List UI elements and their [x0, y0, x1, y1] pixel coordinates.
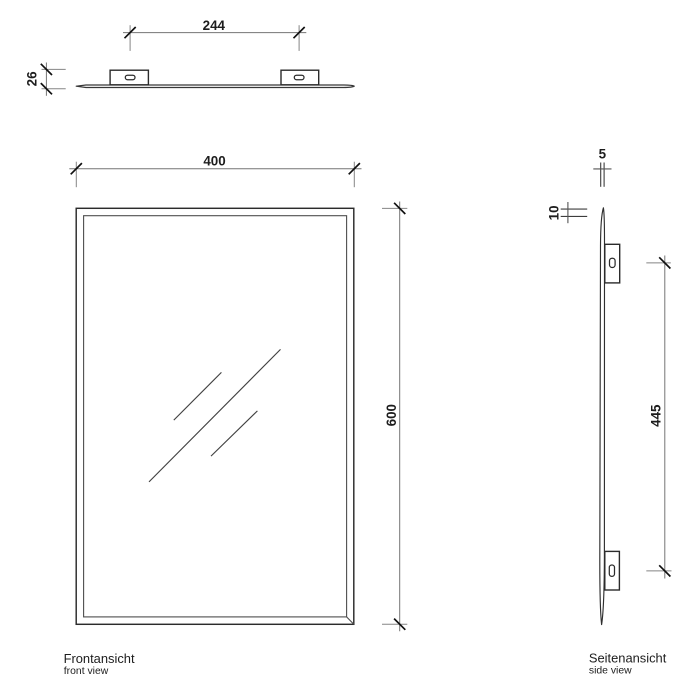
- svg-text:front view: front view: [64, 666, 109, 677]
- svg-text:445: 445: [649, 404, 664, 427]
- svg-text:26: 26: [24, 71, 39, 86]
- svg-text:600: 600: [384, 404, 399, 426]
- svg-text:400: 400: [203, 153, 225, 168]
- svg-text:Seitenansicht: Seitenansicht: [589, 651, 667, 666]
- svg-text:244: 244: [203, 18, 226, 33]
- svg-text:5: 5: [599, 147, 607, 162]
- svg-text:side view: side view: [589, 665, 632, 676]
- svg-text:Frontansicht: Frontansicht: [64, 651, 135, 666]
- svg-text:10: 10: [547, 205, 562, 220]
